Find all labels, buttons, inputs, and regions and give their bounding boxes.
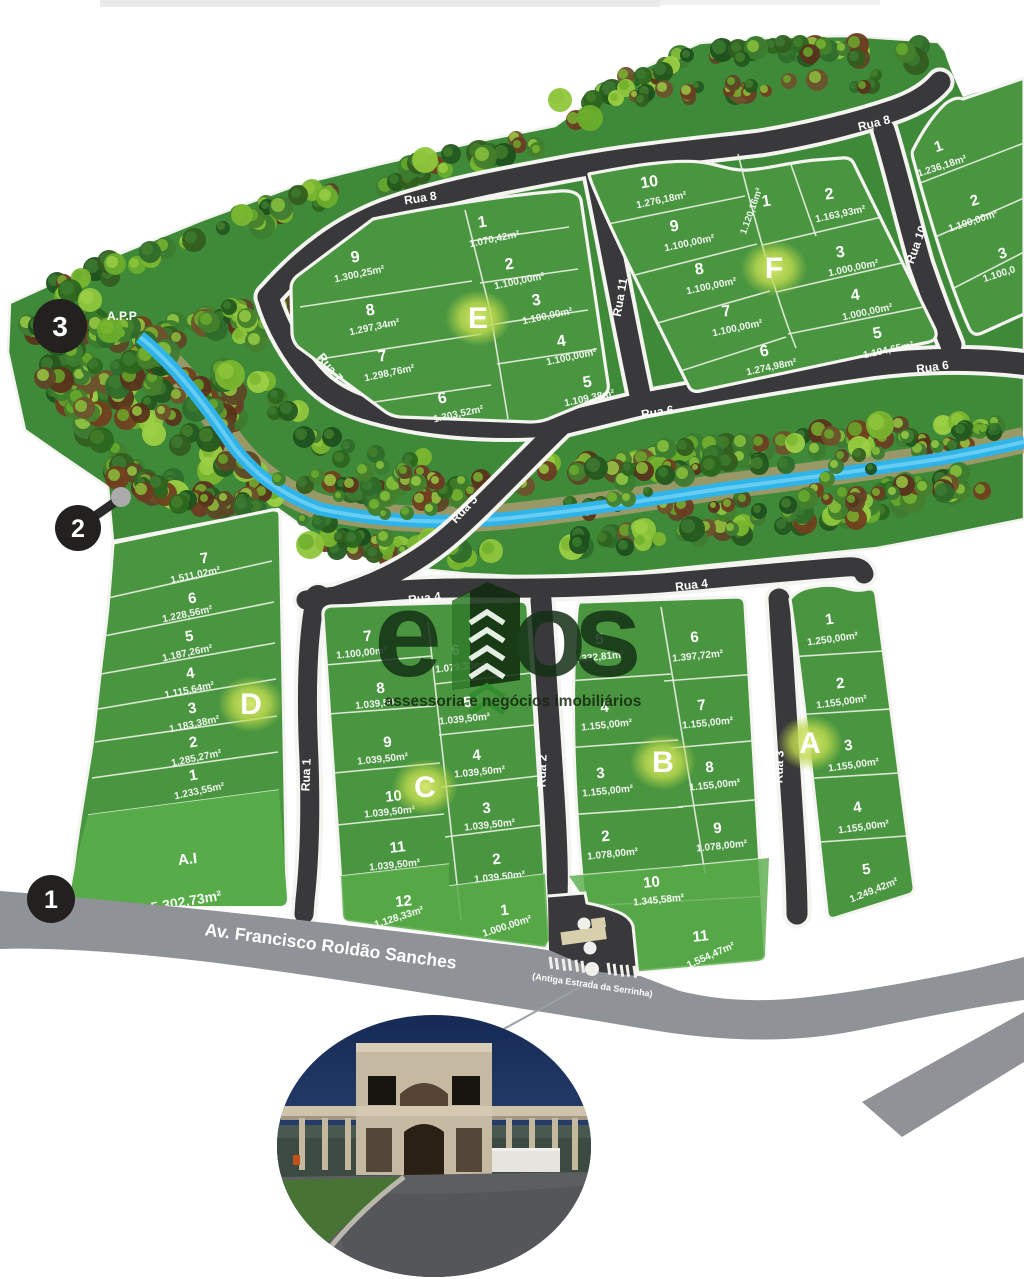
svg-text:10: 10 bbox=[639, 173, 659, 193]
svg-text:A.P.P: A.P.P bbox=[107, 309, 137, 323]
svg-text:B: B bbox=[652, 746, 674, 779]
svg-text:s: s bbox=[574, 566, 642, 702]
svg-text:F: F bbox=[765, 252, 783, 285]
svg-text:A: A bbox=[799, 727, 821, 760]
svg-text:Rua 1: Rua 1 bbox=[298, 758, 313, 791]
svg-text:2: 2 bbox=[71, 515, 85, 543]
svg-text:e: e bbox=[374, 566, 442, 702]
svg-text:D: D bbox=[240, 688, 262, 721]
svg-text:3: 3 bbox=[481, 800, 491, 818]
svg-text:7: 7 bbox=[362, 628, 372, 646]
svg-text:10: 10 bbox=[642, 873, 660, 892]
svg-text:Rua 3: Rua 3 bbox=[771, 750, 786, 783]
svg-text:11: 11 bbox=[389, 838, 407, 857]
svg-text:9: 9 bbox=[712, 820, 722, 838]
svg-text:1: 1 bbox=[499, 902, 509, 920]
svg-text:1: 1 bbox=[44, 886, 58, 914]
svg-text:3: 3 bbox=[52, 311, 68, 342]
svg-text:8: 8 bbox=[704, 759, 714, 777]
svg-text:6: 6 bbox=[689, 629, 699, 647]
svg-text:Rua 2: Rua 2 bbox=[534, 754, 549, 787]
svg-text:2: 2 bbox=[491, 851, 501, 869]
svg-text:C: C bbox=[414, 771, 436, 804]
svg-text:11: 11 bbox=[692, 927, 710, 946]
svg-text:A.I: A.I bbox=[177, 850, 198, 869]
svg-text:9: 9 bbox=[382, 734, 392, 752]
svg-text:7: 7 bbox=[696, 697, 706, 715]
svg-text:E: E bbox=[468, 302, 488, 335]
svg-text:3: 3 bbox=[595, 765, 605, 783]
svg-text:2: 2 bbox=[600, 828, 610, 846]
svg-text:assessoria e negócios imobiliá: assessoria e negócios imobiliários bbox=[385, 693, 642, 710]
